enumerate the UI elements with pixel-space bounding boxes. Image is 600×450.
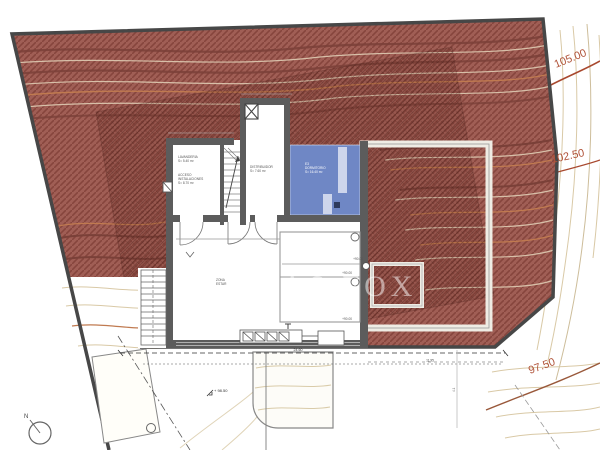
shaft-box xyxy=(245,104,258,119)
entry-room-label-3: S= 8.70 m² xyxy=(178,181,194,185)
watermark-text: LUCAS FOX xyxy=(207,270,418,303)
corridor-label-2: S= 7.60 m² xyxy=(250,169,266,173)
highlighted-room-blue xyxy=(290,145,360,215)
terrace-level-label: +90.00 xyxy=(353,257,363,261)
bedroom-label-3: S= 16.40 m² xyxy=(305,170,322,174)
north-arrow-label: N xyxy=(24,414,28,420)
kitchen-counter-row xyxy=(240,330,344,345)
exterior-stair xyxy=(141,270,166,345)
terrace-depth-dim: 4.1 xyxy=(452,387,456,392)
spot-elevation-label: + 98.50 xyxy=(214,388,228,393)
pool-bottom-level-label: +90.00 xyxy=(342,317,352,321)
inner-width-dim: 11.95 xyxy=(426,359,434,363)
wall-flue-box xyxy=(163,182,172,192)
total-width-dim: 24.60 xyxy=(294,348,303,352)
site-plan-canvas: + 98.50 +90.00 +90.00 +90.00 24.60 11.95… xyxy=(0,0,600,450)
site-plan-drawing: + 98.50 +90.00 +90.00 +90.00 24.60 11.95… xyxy=(0,0,600,450)
utility-room-label-2: S= 5.40 m² xyxy=(178,159,194,163)
